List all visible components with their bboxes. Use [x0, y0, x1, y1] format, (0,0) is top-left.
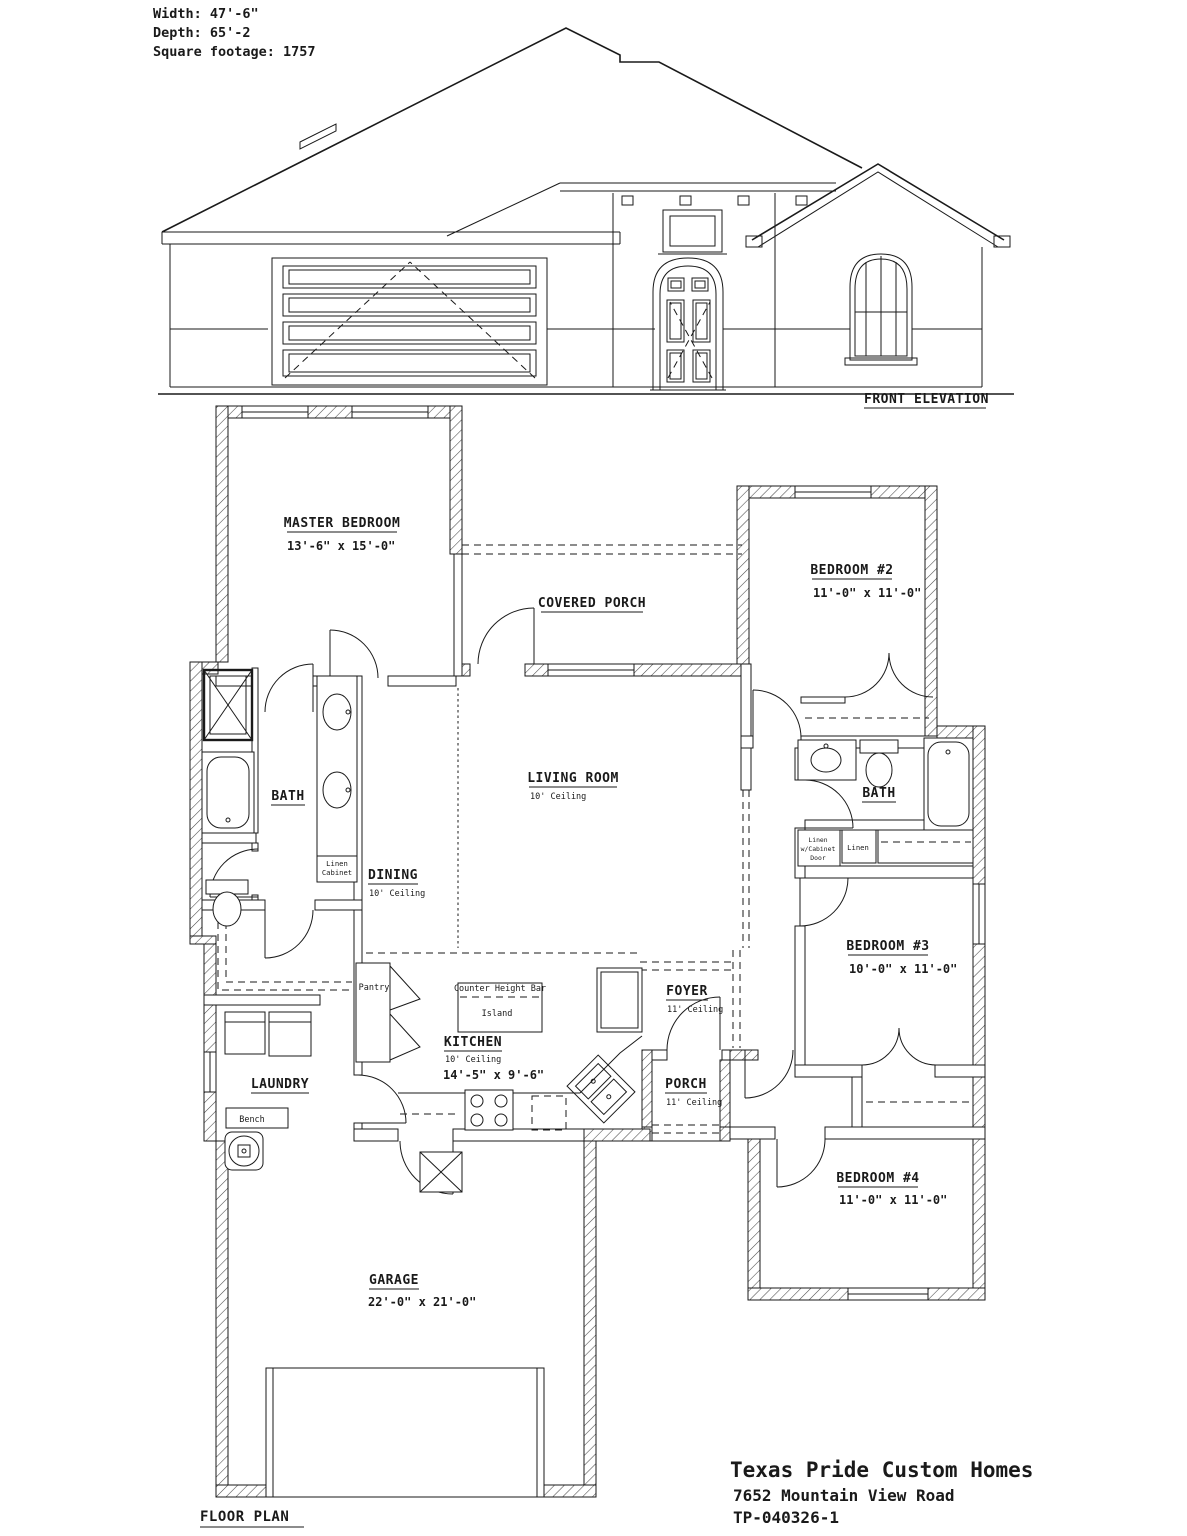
ceiling-note: 11' Ceiling — [666, 1098, 722, 1108]
room-label: BEDROOM #2 — [810, 563, 893, 578]
room-garage: GARAGE 22'-0" x 21'-0" — [368, 1273, 476, 1309]
right-wing-elevation — [746, 164, 1010, 387]
sqft-stat: Square footage: 1757 — [153, 44, 316, 60]
bathtub — [202, 752, 254, 833]
dishwasher — [532, 1096, 566, 1130]
door — [753, 690, 801, 738]
room-master-bedroom: MASTER BEDROOM 13'-6" x 15'-0" — [284, 516, 401, 553]
room-dims: 22'-0" x 21'-0" — [368, 1295, 476, 1309]
room-label: DINING — [368, 868, 418, 883]
room-label: BEDROOM #4 — [836, 1171, 919, 1186]
room-foyer: FOYER 11' Ceiling — [666, 984, 723, 1015]
front-elevation-label: FRONT ELEVATION — [864, 392, 989, 407]
depth-stat: Depth: 65'-2 — [153, 25, 251, 41]
room-bedroom-4: BEDROOM #4 11'-0" x 11'-0" — [836, 1171, 947, 1207]
door — [265, 910, 313, 958]
room-dims: 13'-6" x 15'-0" — [287, 539, 395, 553]
room-label: BATH — [862, 786, 895, 801]
bathtub — [924, 738, 973, 830]
window — [973, 884, 985, 944]
door — [330, 630, 378, 678]
floor-plan-label: FLOOR PLAN — [200, 1509, 289, 1525]
room-label: KITCHEN — [444, 1035, 502, 1050]
room-bath-master: BATH — [271, 789, 305, 805]
vanity-sink — [798, 740, 856, 780]
room-dims: 14'-5" x 9'-6" — [443, 1068, 544, 1082]
blueprint-page: Width: 47'-6" Depth: 65'-2 Square footag… — [0, 0, 1187, 1536]
washer — [225, 1012, 265, 1054]
blueprint-drawing: Width: 47'-6" Depth: 65'-2 Square footag… — [0, 0, 1187, 1536]
plan-number: TP-040326-1 — [733, 1508, 839, 1527]
room-label: MASTER BEDROOM — [284, 516, 401, 531]
refrigerator — [597, 968, 642, 1032]
entry-tower-elevation — [650, 193, 775, 390]
door — [800, 878, 848, 926]
water-heater — [225, 1132, 263, 1170]
room-label: BEDROOM #3 — [846, 939, 929, 954]
door — [777, 1139, 825, 1187]
door — [478, 608, 534, 664]
room-label: LIVING ROOM — [527, 771, 619, 786]
linen-door-label1: Linen — [808, 836, 827, 844]
linen-door-label3: Door — [810, 854, 826, 862]
linen-cabinet-label2: Cabinet — [322, 868, 352, 877]
window — [204, 1052, 216, 1092]
counter-height-bar-label: Counter Height Bar — [454, 984, 546, 994]
stove — [465, 1090, 513, 1130]
width-stat: Width: 47'-6" — [153, 6, 259, 22]
attic-access — [420, 1152, 462, 1192]
room-label: LAUNDRY — [251, 1077, 309, 1092]
toilet — [860, 740, 898, 787]
window — [848, 1288, 928, 1300]
room-bath-2: BATH — [862, 786, 896, 802]
company-name: Texas Pride Custom Homes — [730, 1458, 1033, 1482]
bifold-closet-doors — [862, 1028, 936, 1065]
ceiling-note: 10' Ceiling — [369, 889, 425, 899]
linen-cabinet-label: Linen — [326, 859, 348, 868]
room-bedroom-3: BEDROOM #3 10'-0" x 11'-0" — [846, 939, 957, 976]
window — [242, 406, 308, 418]
room-dining: DINING 10' Ceiling — [368, 868, 425, 899]
room-dims: 11'-0" x 11'-0" — [839, 1193, 947, 1207]
room-porch: PORCH 11' Ceiling — [665, 1077, 722, 1108]
room-living-room: LIVING ROOM 10' Ceiling — [527, 771, 619, 802]
double-vanity — [317, 676, 357, 856]
room-label: FOYER — [666, 984, 708, 999]
window — [548, 664, 634, 676]
garage-door-plan — [266, 1368, 544, 1497]
ceiling-note: 10' Ceiling — [530, 792, 586, 802]
room-covered-porch: COVERED PORCH — [538, 596, 646, 612]
linen-label: Linen — [847, 843, 869, 852]
room-dims: 11'-0" x 11'-0" — [813, 586, 921, 600]
front-elevation-drawing: FRONT ELEVATION — [158, 28, 1014, 408]
room-bedroom-2: BEDROOM #2 11'-0" x 11'-0" — [810, 563, 921, 600]
linen-door-label2: w/Cabinet — [801, 845, 836, 853]
pantry-label: Pantry — [359, 983, 390, 993]
room-label: PORCH — [665, 1077, 707, 1092]
plan-stats: Width: 47'-6" Depth: 65'-2 Square footag… — [153, 6, 316, 60]
ceiling-note: 10' Ceiling — [445, 1055, 501, 1065]
window — [352, 406, 428, 418]
room-label: COVERED PORCH — [538, 596, 646, 611]
title-block: Texas Pride Custom Homes 7652 Mountain V… — [730, 1458, 1033, 1527]
room-laundry: LAUNDRY — [251, 1077, 309, 1093]
door — [358, 1075, 406, 1123]
corner-sink — [567, 1055, 635, 1123]
room-kitchen: KITCHEN 10' Ceiling 14'-5" x 9'-6" — [443, 1035, 544, 1082]
door — [265, 664, 313, 712]
window — [795, 486, 871, 498]
dryer — [269, 1012, 311, 1056]
pantry-cabinet — [356, 963, 420, 1062]
room-label: GARAGE — [369, 1273, 419, 1288]
garage-door-elevation — [272, 258, 547, 385]
room-dims: 10'-0" x 11'-0" — [849, 962, 957, 976]
floor-plan-drawing: MASTER BEDROOM 13'-6" x 15'-0" COVERED P… — [190, 406, 985, 1527]
ceiling-note: 11' Ceiling — [667, 1005, 723, 1015]
company-address: 7652 Mountain View Road — [733, 1486, 955, 1505]
bifold-closet-doors — [845, 653, 933, 697]
bench-label: Bench — [239, 1115, 265, 1125]
island-label: Island — [482, 1009, 513, 1019]
room-label: BATH — [271, 789, 304, 804]
